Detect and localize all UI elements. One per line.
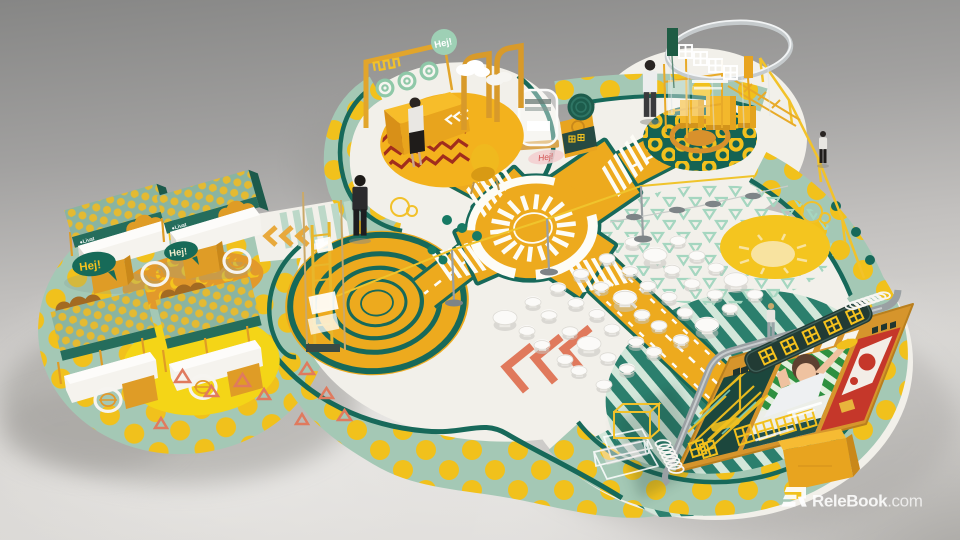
svg-text:ReleBook.com: ReleBook.com xyxy=(812,492,923,511)
